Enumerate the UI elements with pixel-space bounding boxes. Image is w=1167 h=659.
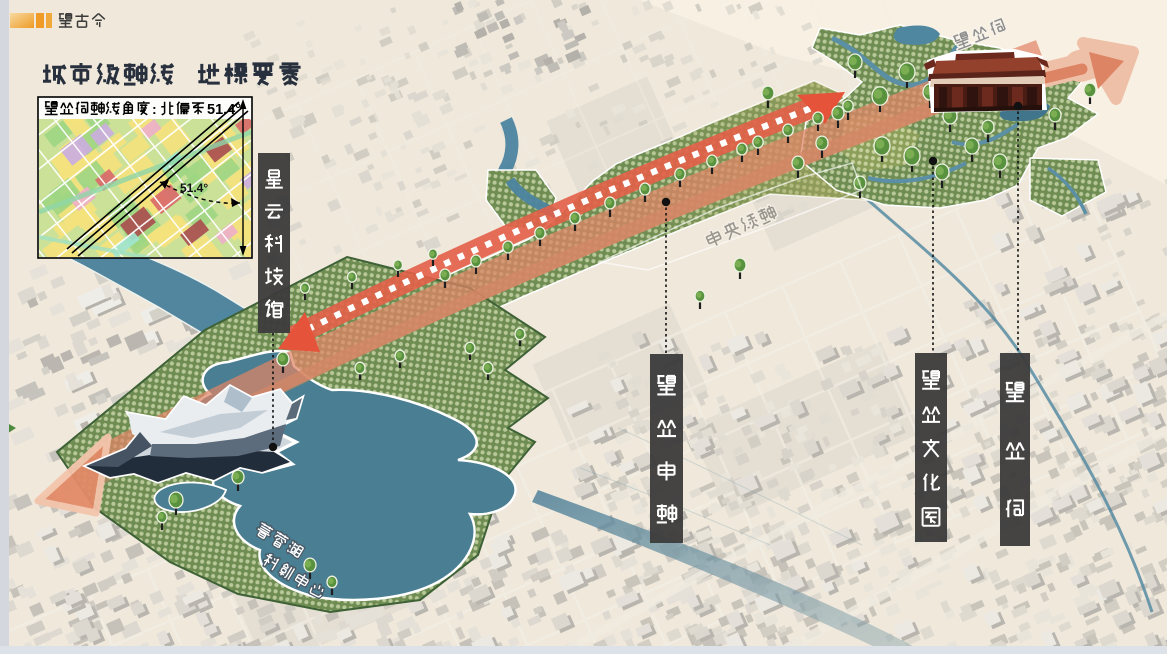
- svg-text:51.4°: 51.4°: [180, 181, 208, 195]
- svg-text::: :: [152, 101, 157, 117]
